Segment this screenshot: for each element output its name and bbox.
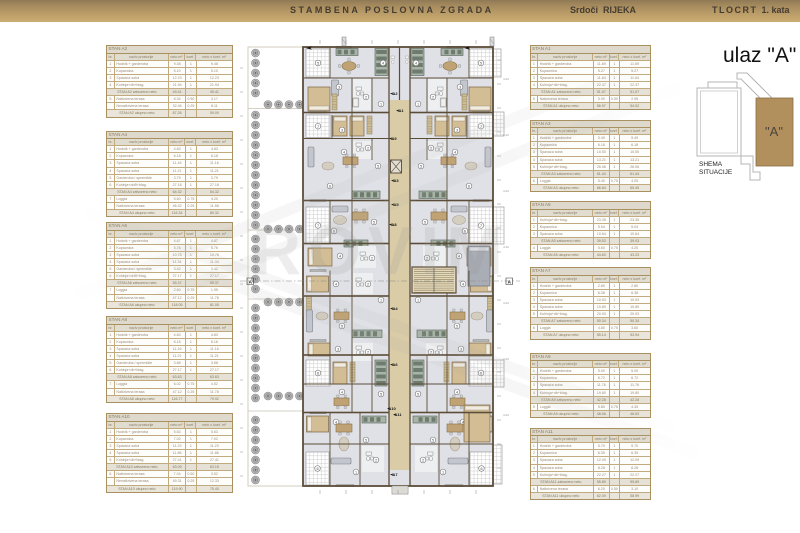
svg-text:4.20: 4.20 <box>503 77 509 81</box>
svg-text:2: 2 <box>367 147 369 151</box>
svg-text:4: 4 <box>415 62 417 66</box>
svg-text:A3: A3 <box>393 178 399 183</box>
svg-text:1: 1 <box>380 103 382 107</box>
svg-text:5: 5 <box>420 165 422 169</box>
svg-text:1: 1 <box>442 471 444 475</box>
svg-text:3: 3 <box>338 86 340 90</box>
svg-text:A6: A6 <box>392 362 398 367</box>
svg-text:4: 4 <box>454 151 456 155</box>
svg-text:4: 4 <box>341 391 343 395</box>
svg-text:A4: A4 <box>392 306 398 311</box>
svg-text:6: 6 <box>480 467 482 471</box>
svg-text:2: 2 <box>375 459 377 463</box>
svg-text:1: 1 <box>417 299 419 303</box>
svg-text:4.20: 4.20 <box>503 189 509 193</box>
svg-text:A7: A7 <box>392 472 398 477</box>
svg-text:5: 5 <box>432 439 434 443</box>
svg-text:3: 3 <box>456 129 458 133</box>
svg-text:1: 1 <box>417 103 419 107</box>
svg-text:5: 5 <box>365 439 367 443</box>
svg-text:2: 2 <box>432 96 434 100</box>
svg-text:2: 2 <box>422 459 424 463</box>
svg-text:4.20: 4.20 <box>503 301 509 305</box>
svg-text:4: 4 <box>343 151 345 155</box>
svg-text:5: 5 <box>380 393 382 397</box>
svg-text:3: 3 <box>341 129 343 133</box>
svg-text:5: 5 <box>417 393 419 397</box>
svg-text:5: 5 <box>480 62 482 66</box>
svg-text:4.20: 4.20 <box>503 413 509 417</box>
svg-text:6: 6 <box>316 467 318 471</box>
svg-text:A1: A1 <box>398 108 404 113</box>
svg-text:4: 4 <box>456 391 458 395</box>
svg-text:1: 1 <box>355 471 357 475</box>
svg-text:2: 2 <box>367 351 369 355</box>
svg-text:6: 6 <box>317 372 319 376</box>
svg-text:4: 4 <box>382 62 384 66</box>
svg-text:A2: A2 <box>392 91 398 96</box>
svg-text:A11: A11 <box>394 412 402 417</box>
svg-text:5: 5 <box>456 325 458 329</box>
svg-text:4.20: 4.20 <box>503 133 509 137</box>
svg-text:5: 5 <box>317 62 319 66</box>
svg-text:"A": "A" <box>765 124 783 139</box>
svg-text:2: 2 <box>365 96 367 100</box>
svg-text:1: 1 <box>380 299 382 303</box>
svg-text:3: 3 <box>337 348 339 352</box>
svg-text:7: 7 <box>317 125 319 129</box>
svg-text:3: 3 <box>459 86 461 90</box>
svg-text:6: 6 <box>468 185 470 189</box>
svg-text:A9: A9 <box>391 136 397 141</box>
